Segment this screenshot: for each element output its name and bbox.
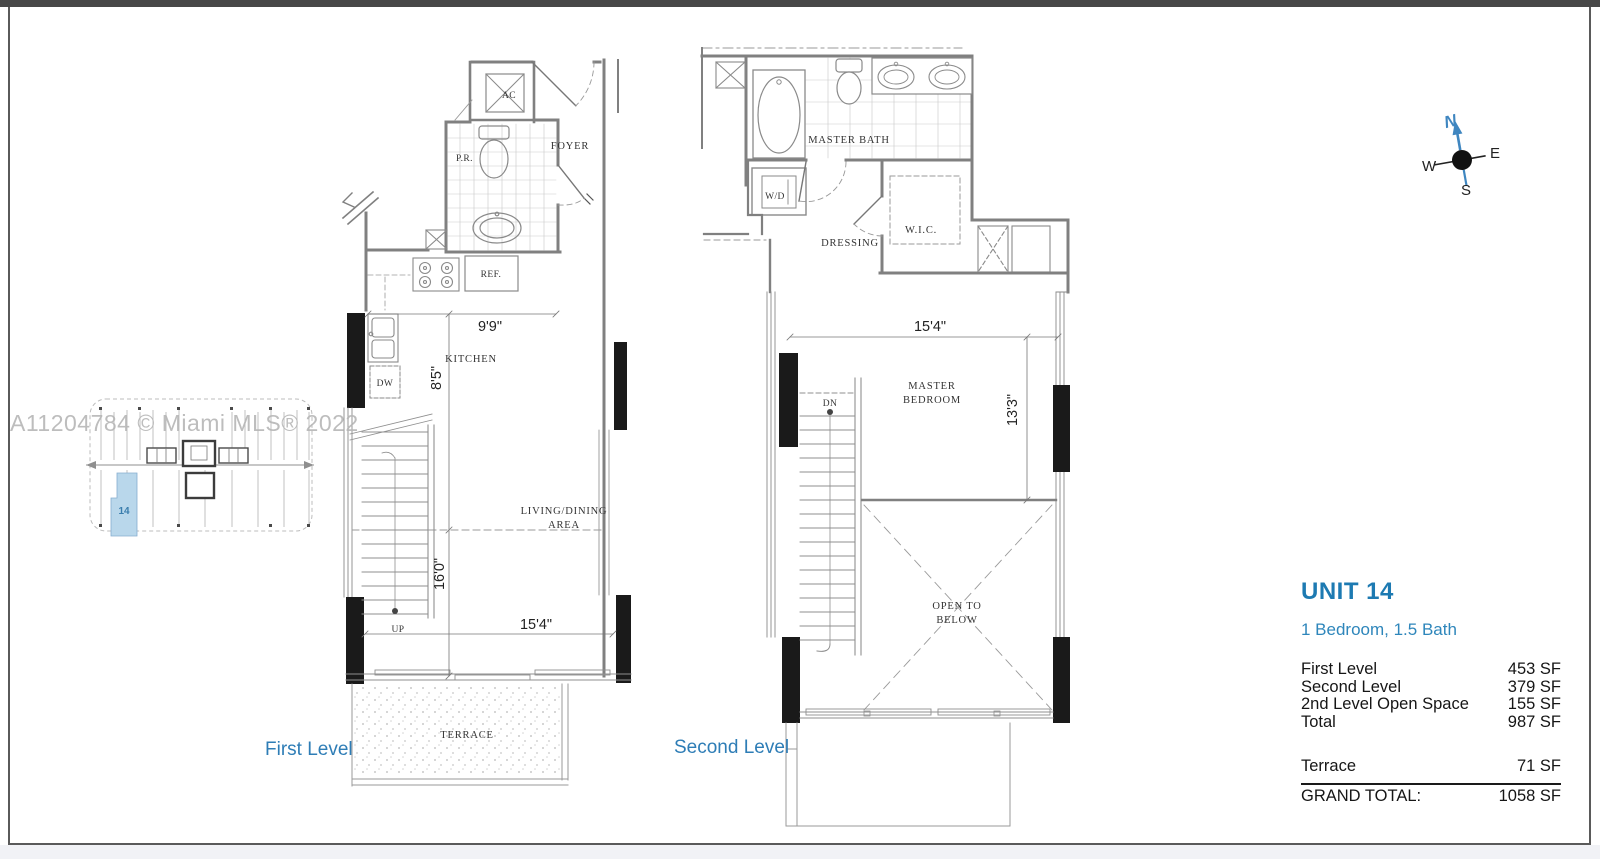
- stove: [413, 258, 459, 291]
- key-plan-unit-14-highlight: [111, 473, 137, 536]
- first-level-caption: First Level: [265, 739, 353, 761]
- powder-room-door: [558, 165, 593, 205]
- open-to-below-label-2: BELOW: [936, 615, 977, 626]
- master-bath-toilet: [836, 59, 862, 104]
- compass-hub: [1450, 148, 1473, 171]
- area-row-label: First Level: [1301, 661, 1377, 679]
- compass-s-label: S: [1461, 182, 1471, 199]
- pr-label: P.R.: [456, 154, 473, 164]
- second-level-caption: Second Level: [674, 737, 789, 759]
- entry-door: [532, 62, 594, 106]
- master-bath-label: MASTER BATH: [808, 135, 889, 146]
- master-bath-tub: [753, 70, 805, 158]
- dim-living-width: 15'4": [520, 617, 552, 633]
- wall-column: [782, 637, 800, 723]
- stairs-up: [350, 414, 434, 618]
- foyer-label: FOYER: [551, 141, 589, 152]
- area-table: First Level 453 SF Second Level 379 SF 2…: [1301, 661, 1561, 731]
- dim-living-depth: 16'0": [432, 558, 448, 590]
- stairs-down: [800, 378, 861, 655]
- wd-label: W/D: [765, 192, 785, 202]
- compass: N E W S: [1422, 111, 1500, 199]
- living-dining-label-2: AREA: [548, 520, 580, 531]
- area-row-open-space: 2nd Level Open Space 155 SF: [1301, 696, 1561, 714]
- dim-bedroom-width: 15'4": [914, 319, 946, 335]
- area-row-value: 453 SF: [1508, 661, 1561, 679]
- unit-title: UNIT 14: [1301, 578, 1561, 606]
- up-label: UP: [392, 625, 405, 635]
- wall-column: [1053, 385, 1070, 472]
- unit-info-panel: UNIT 14 1 Bedroom, 1.5 Bath First Level …: [1301, 578, 1561, 805]
- second-level-plan: MASTER BATH W/D DRESSING W.I.C. DN MASTE…: [702, 48, 1070, 826]
- master-bedroom-label-2: BEDROOM: [903, 395, 961, 406]
- shaft-box-right: [978, 226, 1050, 272]
- powder-room-sink: [473, 212, 521, 243]
- wic-door: [854, 196, 882, 236]
- area-row-terrace: Terrace 71 SF: [1301, 758, 1561, 776]
- terrace-label: TERRACE: [440, 730, 493, 741]
- open-to-below-label-1: OPEN TO: [932, 601, 981, 612]
- floor-plan-sheet: 14: [0, 0, 1600, 859]
- area-row-total: Total 987 SF: [1301, 714, 1561, 732]
- wall-column: [346, 597, 364, 684]
- master-bedroom-label-1: MASTER: [908, 381, 955, 392]
- first-level-plan: AC P.R. FOYER REF. DW KITCHEN LIVING/DIN…: [343, 60, 631, 786]
- area-row-value: 379 SF: [1508, 679, 1561, 697]
- terrace-outline-below: [786, 723, 1010, 826]
- dim-kitchen-width: 9'9": [478, 319, 502, 335]
- area-row-label: Terrace: [1301, 758, 1356, 776]
- compass-n-label: N: [1442, 111, 1459, 133]
- grand-total-label: GRAND TOTAL:: [1301, 788, 1421, 806]
- kitchen-shaft-box: [426, 230, 447, 249]
- area-row-value: 987 SF: [1508, 714, 1561, 732]
- kitchen-sink: [368, 314, 398, 362]
- dressing-label: DRESSING: [821, 238, 879, 249]
- area-row-grand-total: GRAND TOTAL: 1058 SF: [1301, 783, 1561, 806]
- wall-column: [779, 353, 798, 447]
- unit-subtitle: 1 Bedroom, 1.5 Bath: [1301, 620, 1561, 640]
- dim-bedroom-depth: 13'3": [1005, 394, 1021, 426]
- area-row-value: 155 SF: [1508, 696, 1561, 714]
- area-row-label: 2nd Level Open Space: [1301, 696, 1469, 714]
- dw-label: DW: [377, 379, 394, 389]
- ac-label: AC: [502, 91, 516, 101]
- shaft-box: [716, 62, 745, 88]
- sliding-glass-door: [346, 670, 631, 680]
- area-row-value: 71 SF: [1517, 758, 1561, 776]
- living-dining-label-1: LIVING/DINING: [521, 506, 608, 517]
- master-bath-vanity: [872, 58, 972, 94]
- key-plan-unit-number: 14: [118, 506, 130, 517]
- area-row-first-level: First Level 453 SF: [1301, 661, 1561, 679]
- area-row-second-level: Second Level 379 SF: [1301, 679, 1561, 697]
- ref-label: REF.: [481, 270, 502, 280]
- grand-total-value: 1058 SF: [1499, 788, 1561, 806]
- compass-e-label: E: [1490, 145, 1500, 162]
- wic-label: W.I.C.: [905, 225, 937, 236]
- wall-column: [614, 342, 627, 430]
- area-row-label: Total: [1301, 714, 1336, 732]
- dn-label: DN: [823, 399, 838, 409]
- mls-watermark: A11204784 © Miami MLS® 2022: [10, 410, 359, 437]
- wall-column: [616, 595, 631, 683]
- dim-kitchen-depth: 8'5": [429, 366, 445, 390]
- compass-w-label: W: [1422, 158, 1437, 175]
- wall-column: [347, 313, 365, 408]
- compass-north-arrow: [1457, 132, 1460, 150]
- kitchen-label: KITCHEN: [445, 354, 497, 365]
- wall-column: [1053, 637, 1070, 723]
- sliding-glass-door-upper: [800, 709, 1053, 718]
- area-row-label: Second Level: [1301, 679, 1401, 697]
